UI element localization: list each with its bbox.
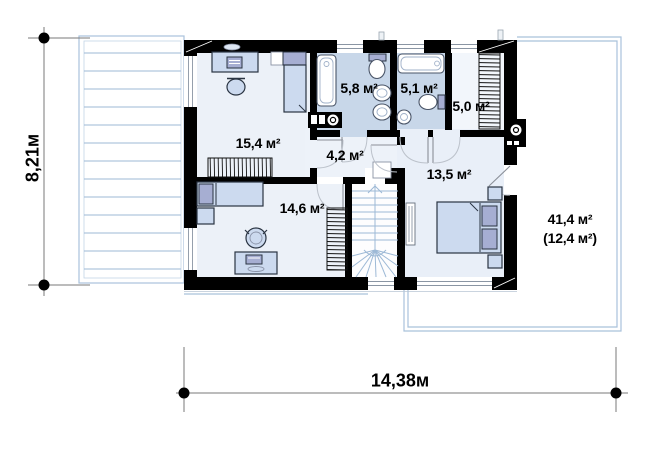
room-area-label-hall: 4,2 м² — [326, 147, 363, 163]
toilet — [419, 95, 437, 110]
stair-landing — [373, 162, 391, 178]
dimension-label-height: 8,21м — [23, 134, 44, 182]
room-area-label-balcony-net: (12,4 м²) — [543, 230, 597, 246]
sink — [373, 104, 391, 120]
wardrobe-top — [283, 52, 306, 65]
toilet — [369, 60, 385, 79]
nightstand — [197, 208, 214, 224]
window-left-1 — [184, 56, 197, 107]
sink — [397, 110, 411, 124]
roof-vent-icon — [498, 30, 503, 40]
pillow — [199, 184, 213, 204]
radiator — [208, 158, 272, 177]
wardrobe — [284, 65, 306, 112]
room-area-label-balcony: 41,4 м² — [548, 211, 593, 227]
floor-plan: 15,4 м² 5,8 м² 5,1 м² 5,0 м² 4,2 м² 13,5… — [0, 0, 655, 467]
toilet-tank — [438, 95, 445, 109]
room-area-label-wardrobe: 5,0 м² — [452, 98, 489, 114]
nightstand — [488, 187, 502, 200]
roof-vent-icon — [379, 32, 384, 40]
window-top-2 — [397, 40, 424, 53]
printer-icon — [227, 57, 242, 68]
nightstand — [488, 255, 502, 268]
desk-lamp-icon — [224, 44, 240, 50]
room-area-label-study: 15,4 м² — [236, 135, 281, 151]
office-chair-icon — [227, 79, 245, 95]
radiator — [406, 203, 415, 245]
clothes-rack — [327, 208, 347, 270]
window-bottom-2 — [417, 277, 492, 290]
room-area-label-bedroom-2: 14,6 м² — [280, 200, 325, 216]
pillow — [482, 229, 497, 249]
window-top-3 — [451, 40, 477, 53]
room-area-label-bedroom-1: 13,5 м² — [427, 166, 472, 182]
clothes-rack — [479, 53, 500, 129]
terrace-deck — [79, 36, 184, 283]
window-top-1 — [337, 40, 363, 53]
window-left-2 — [184, 228, 197, 270]
dimension-label-width: 14,38м — [371, 371, 429, 392]
pillow — [482, 206, 497, 226]
chair-icon — [246, 228, 266, 248]
window-bottom-1 — [368, 277, 394, 290]
room-area-label-bathroom-1: 5,8 м² — [340, 80, 377, 96]
room-area-label-bathroom-2: 5,1 м² — [400, 80, 437, 96]
printer-icon — [246, 255, 262, 264]
